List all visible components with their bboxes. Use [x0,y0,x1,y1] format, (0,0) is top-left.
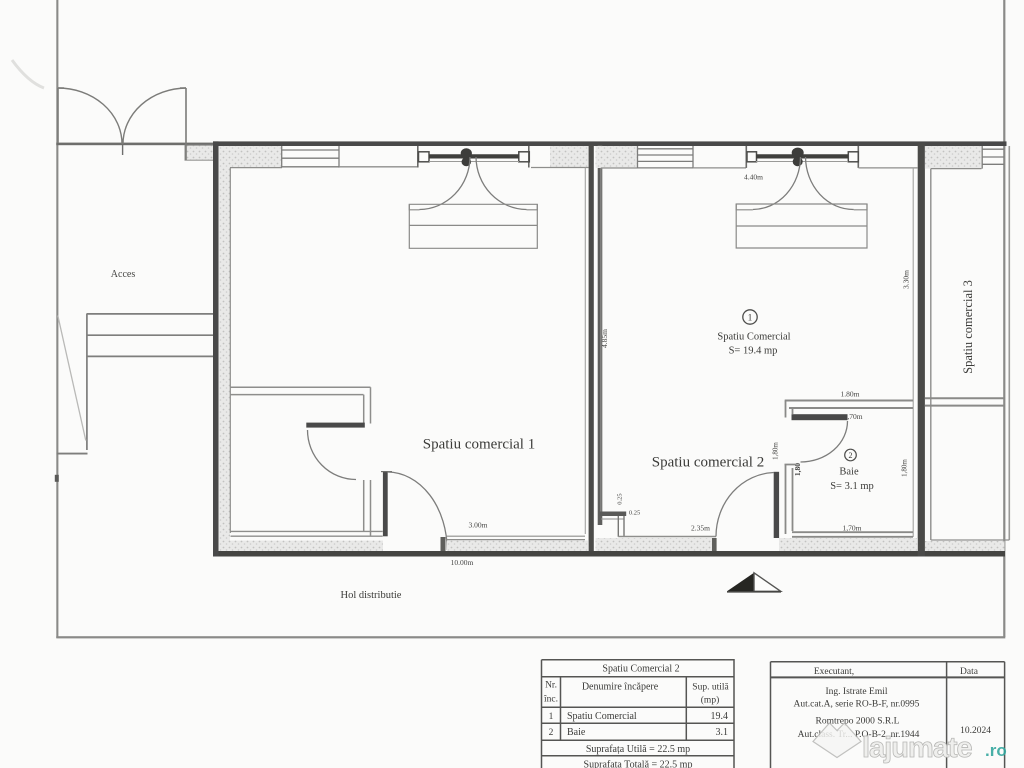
svg-text:1,70m: 1,70m [843,524,862,533]
svg-text:Nr.: Nr. [545,681,557,691]
svg-text:10.00m: 10.00m [451,558,474,567]
svg-text:1,80m: 1,80m [901,459,909,477]
svg-text:Suprafața Utilă = 22.5 mp: Suprafața Utilă = 22.5 mp [586,744,690,755]
svg-text:.ro: .ro [985,741,1007,760]
svg-text:S= 3.1 mp: S= 3.1 mp [830,481,874,492]
svg-text:lajumate: lajumate [862,732,973,764]
svg-text:Sup. utilă: Sup. utilă [692,683,729,693]
svg-text:Hol distributie: Hol distributie [341,590,402,601]
svg-text:Acces: Acces [111,269,136,280]
svg-text:,70m: ,70m [847,412,862,421]
svg-text:2: 2 [849,451,853,460]
svg-text:0.25: 0.25 [617,493,624,504]
svg-text:Suprafața Totală = 22.5 mp: Suprafața Totală = 22.5 mp [584,760,693,768]
svg-text:19.4: 19.4 [711,711,729,722]
svg-text:1,80m: 1,80m [772,442,780,460]
svg-text:2: 2 [549,728,554,738]
svg-text:4.40m: 4.40m [744,173,763,182]
svg-text:Baie: Baie [567,727,586,738]
svg-text:Spatiu comercial 2: Spatiu comercial 2 [652,455,764,471]
svg-text:3.1: 3.1 [716,727,729,738]
svg-text:S= 19.4 mp: S= 19.4 mp [729,346,778,357]
svg-text:Baie: Baie [839,467,859,478]
svg-text:Ing. Istrate Emil: Ing. Istrate Emil [826,687,888,697]
svg-text:Spatiu Comercial: Spatiu Comercial [717,332,790,343]
svg-text:Spatiu Comercial: Spatiu Comercial [567,711,637,722]
svg-text:(mp): (mp) [701,695,719,706]
svg-text:1: 1 [748,314,753,324]
svg-text:Aut.cat.A, serie RO-B-F, nr.09: Aut.cat.A, serie RO-B-F, nr.0995 [794,700,920,710]
svg-text:1: 1 [549,712,554,722]
svg-text:Spatiu comercial 1: Spatiu comercial 1 [423,437,535,453]
svg-text:Executant,: Executant, [814,667,854,677]
svg-text:Data: Data [960,667,979,677]
svg-text:1.80m: 1.80m [841,390,860,399]
svg-text:0.25: 0.25 [629,510,640,517]
svg-text:4.85m: 4.85m [600,329,609,348]
svg-text:înc.: înc. [543,695,558,705]
svg-text:2.35m: 2.35m [691,524,710,533]
svg-text:3.00m: 3.00m [469,521,488,530]
svg-text:Spatiu comercial 3: Spatiu comercial 3 [961,280,975,374]
svg-text:Spatiu Comercial 2: Spatiu Comercial 2 [602,664,679,675]
svg-text:Denumire încăpere: Denumire încăpere [582,682,659,693]
svg-text:3.30m: 3.30m [902,270,911,289]
